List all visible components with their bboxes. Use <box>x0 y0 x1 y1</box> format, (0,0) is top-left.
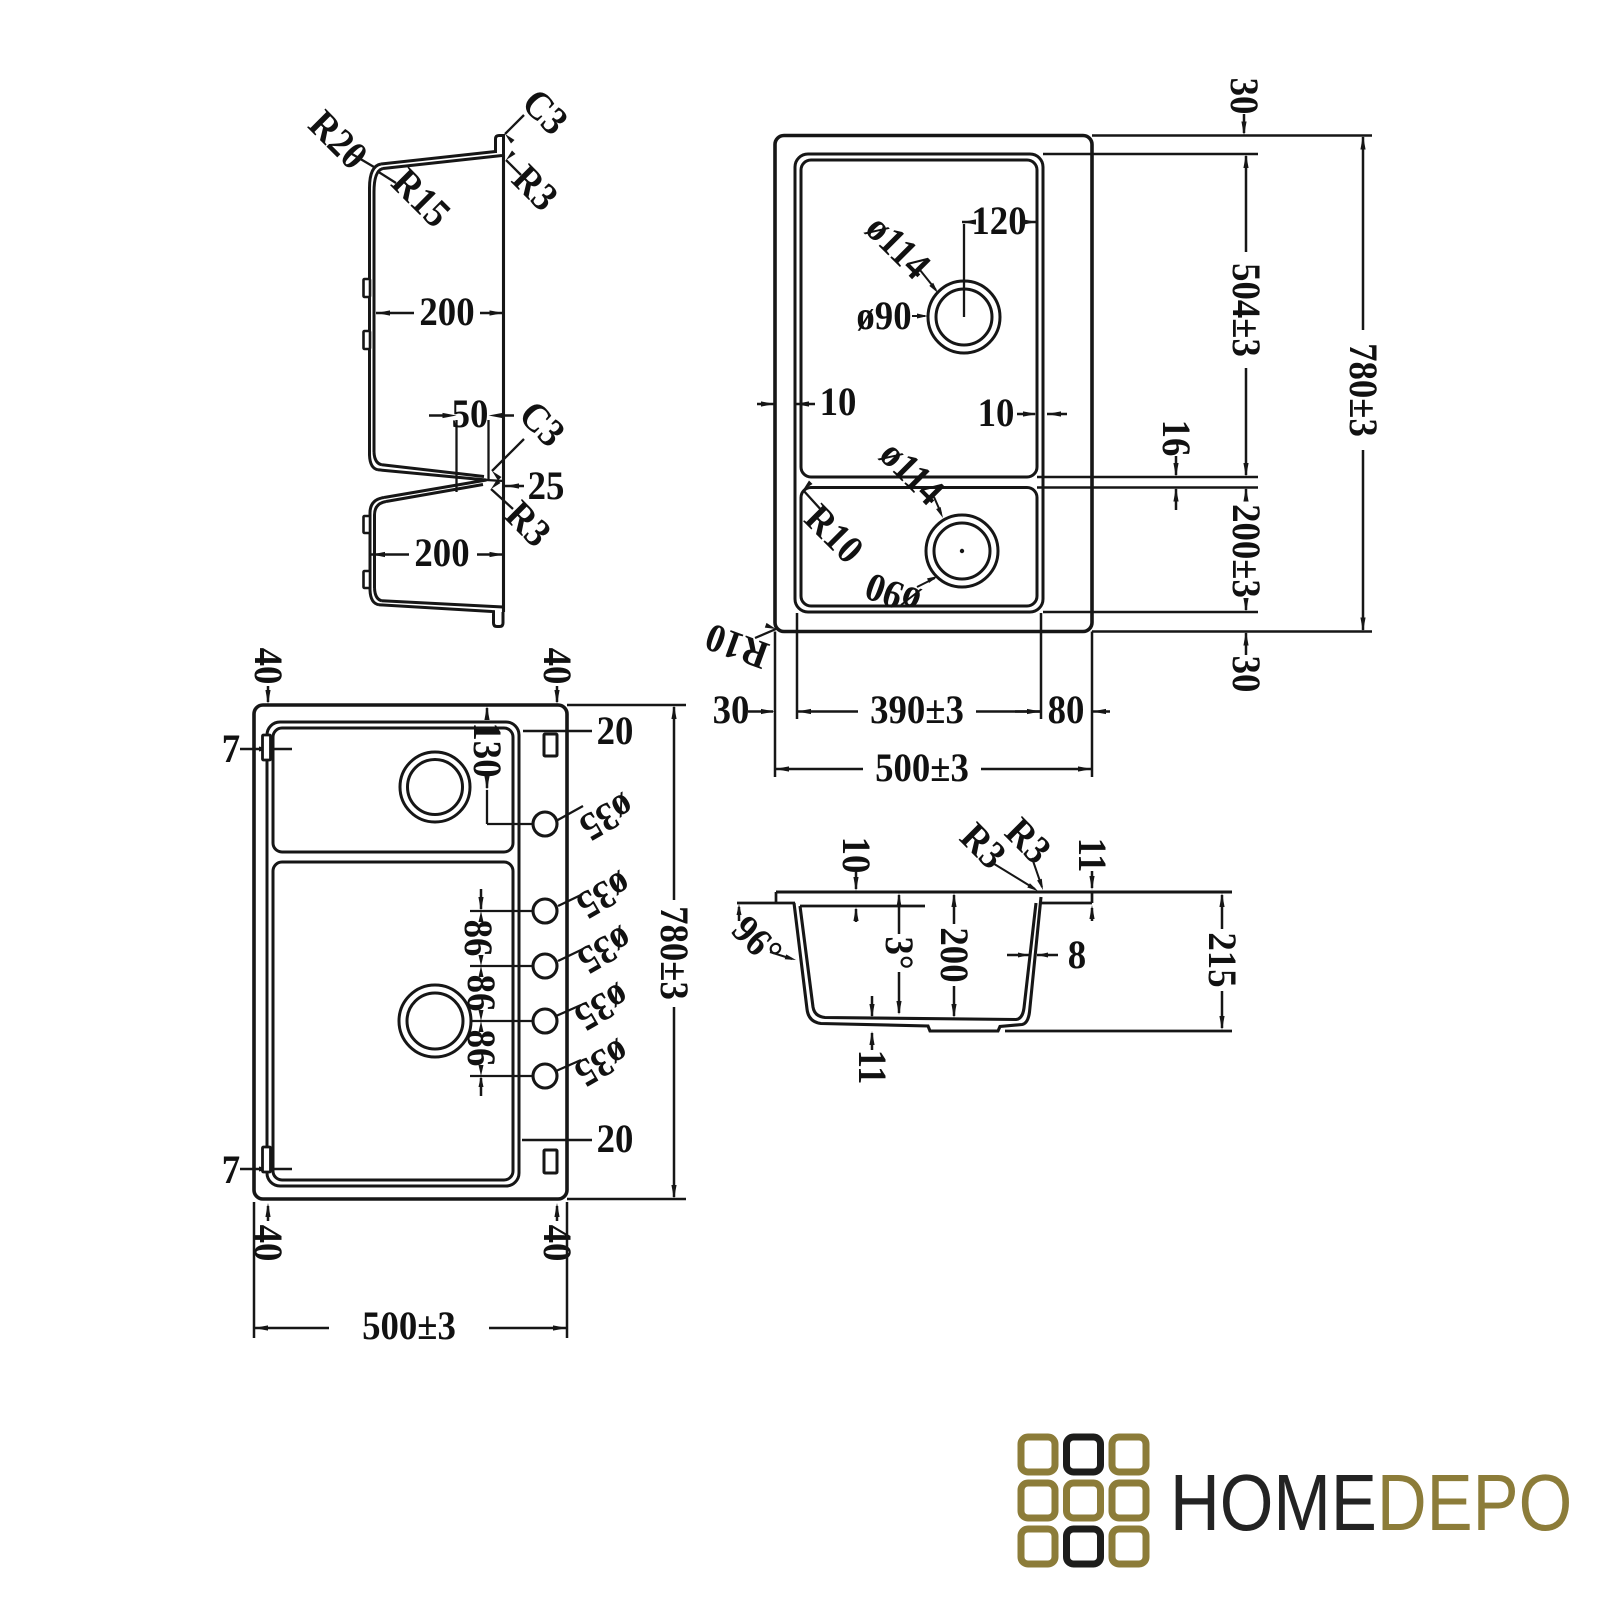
svg-text:30: 30 <box>1224 656 1268 693</box>
svg-text:HOMEDEPO: HOMEDEPO <box>1170 1457 1572 1547</box>
svg-text:16: 16 <box>1154 420 1198 457</box>
svg-text:86: 86 <box>456 920 500 957</box>
svg-text:120: 120 <box>971 199 1026 243</box>
svg-text:504±3: 504±3 <box>1224 263 1268 357</box>
svg-text:20: 20 <box>597 709 634 753</box>
svg-text:500±3: 500±3 <box>875 746 969 790</box>
svg-text:30: 30 <box>713 688 750 732</box>
svg-text:7: 7 <box>222 727 240 771</box>
svg-text:10: 10 <box>978 391 1015 435</box>
svg-text:10: 10 <box>820 380 857 424</box>
svg-text:40: 40 <box>535 1225 579 1262</box>
svg-text:780±3: 780±3 <box>652 906 696 1000</box>
svg-text:40: 40 <box>535 648 579 685</box>
svg-text:86: 86 <box>459 1030 503 1067</box>
svg-text:11: 11 <box>850 1050 894 1085</box>
svg-text:3°: 3° <box>877 936 921 969</box>
svg-text:200: 200 <box>419 290 474 334</box>
svg-text:30: 30 <box>1222 78 1266 115</box>
svg-text:20: 20 <box>597 1117 634 1161</box>
svg-text:780±3: 780±3 <box>1341 343 1385 437</box>
svg-text:390±3: 390±3 <box>870 688 964 732</box>
svg-text:86: 86 <box>459 975 503 1012</box>
svg-text:40: 40 <box>246 1225 290 1262</box>
svg-text:11: 11 <box>1070 838 1114 873</box>
svg-text:500±3: 500±3 <box>362 1304 456 1348</box>
svg-text:200: 200 <box>932 927 976 982</box>
svg-text:ø90: ø90 <box>856 294 911 338</box>
svg-text:200±3: 200±3 <box>1224 504 1268 598</box>
svg-text:50: 50 <box>452 392 489 436</box>
svg-text:8: 8 <box>1068 933 1086 977</box>
svg-text:215: 215 <box>1200 932 1244 987</box>
svg-text:7: 7 <box>222 1148 240 1192</box>
svg-text:80: 80 <box>1048 688 1085 732</box>
svg-text:40: 40 <box>246 648 290 685</box>
svg-text:10: 10 <box>834 837 878 874</box>
svg-text:130: 130 <box>465 722 509 777</box>
svg-text:200: 200 <box>414 531 469 575</box>
